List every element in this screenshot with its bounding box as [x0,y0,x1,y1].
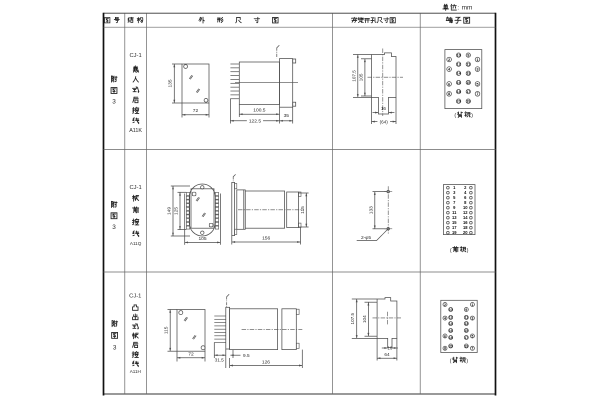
svg-text:20: 20 [463,230,468,235]
svg-text:4: 4 [444,316,446,320]
svg-text:16: 16 [388,346,393,351]
svg-text:107.5: 107.5 [351,70,356,82]
svg-text:72: 72 [188,352,194,358]
svg-text:): ) [471,113,473,119]
svg-text:2-φ5: 2-φ5 [361,235,371,241]
svg-text:3: 3 [471,316,473,320]
svg-text:12: 12 [449,316,453,320]
svg-text:7: 7 [476,91,478,96]
svg-text:(: ( [454,113,456,119]
svg-text:(: ( [450,358,452,364]
svg-text:115: 115 [300,206,306,214]
svg-text:17: 17 [466,89,470,94]
svg-text:mm: mm [462,5,473,12]
svg-text:17: 17 [464,336,468,340]
svg-text:2: 2 [444,303,446,307]
svg-text:10: 10 [449,308,453,312]
svg-text:107.5: 107.5 [350,313,355,325]
svg-text:100.5: 100.5 [253,107,266,113]
svg-text:1: 1 [471,303,473,307]
svg-text:126: 126 [262,359,270,365]
svg-text:8: 8 [444,347,446,351]
svg-text:9: 9 [465,308,467,312]
svg-text:156: 156 [262,236,270,242]
svg-text:122.5: 122.5 [249,119,262,125]
svg-text:149: 149 [167,207,173,215]
svg-text:CJ-1: CJ-1 [129,294,141,300]
svg-text:A11K: A11K [129,128,142,134]
svg-text:14: 14 [449,322,453,326]
svg-text:(: ( [450,248,452,254]
svg-text:6: 6 [444,334,446,338]
svg-text:16: 16 [381,106,387,111]
svg-text:18: 18 [449,336,453,340]
svg-text:19: 19 [464,344,468,348]
svg-text:): ) [466,358,468,364]
svg-text:72: 72 [193,108,199,114]
svg-text:10: 10 [456,52,460,57]
svg-text:115: 115 [164,326,170,334]
svg-text:20: 20 [449,344,453,348]
svg-text:11: 11 [464,316,468,320]
svg-text:31.5: 31.5 [215,357,225,362]
svg-text:104: 104 [362,315,367,323]
svg-text:19: 19 [452,230,457,235]
svg-text:64: 64 [384,352,390,357]
svg-text:3: 3 [113,345,117,352]
svg-text:135: 135 [168,79,174,87]
svg-text:15: 15 [464,329,468,333]
svg-text:): ) [467,248,469,254]
svg-text:A11H: A11H [130,369,141,374]
svg-text:CJ-1: CJ-1 [129,185,141,191]
svg-text:125: 125 [174,207,180,215]
svg-text:3: 3 [112,98,116,105]
svg-text:A11Q: A11Q [130,241,142,246]
svg-text:5: 5 [471,334,473,338]
svg-text:(64): (64) [380,119,389,124]
svg-text:133: 133 [368,206,374,214]
svg-text::: : [457,6,459,12]
svg-text:CJ-1: CJ-1 [129,53,141,59]
svg-text:16: 16 [449,329,453,333]
svg-text:35: 35 [284,113,290,119]
svg-text:7: 7 [471,347,473,351]
svg-text:3: 3 [112,224,116,231]
svg-text:9.5: 9.5 [243,353,250,358]
svg-text:105: 105 [358,73,363,81]
svg-text:20: 20 [456,99,460,104]
svg-text:105: 105 [198,236,206,242]
svg-text:13: 13 [464,322,468,326]
